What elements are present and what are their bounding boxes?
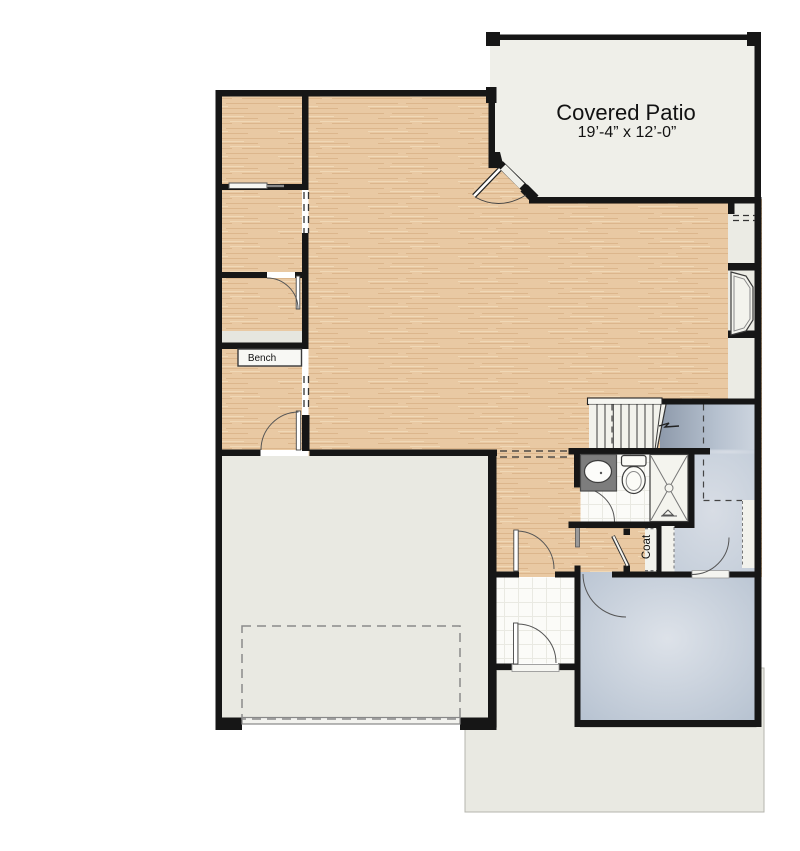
svg-text:Coat: Coat [641,534,653,559]
svg-text:Covered Patio: Covered Patio [556,100,695,125]
svg-text:19’-4” x 12’-0”: 19’-4” x 12’-0” [578,124,677,141]
svg-text:Bench: Bench [248,353,276,364]
